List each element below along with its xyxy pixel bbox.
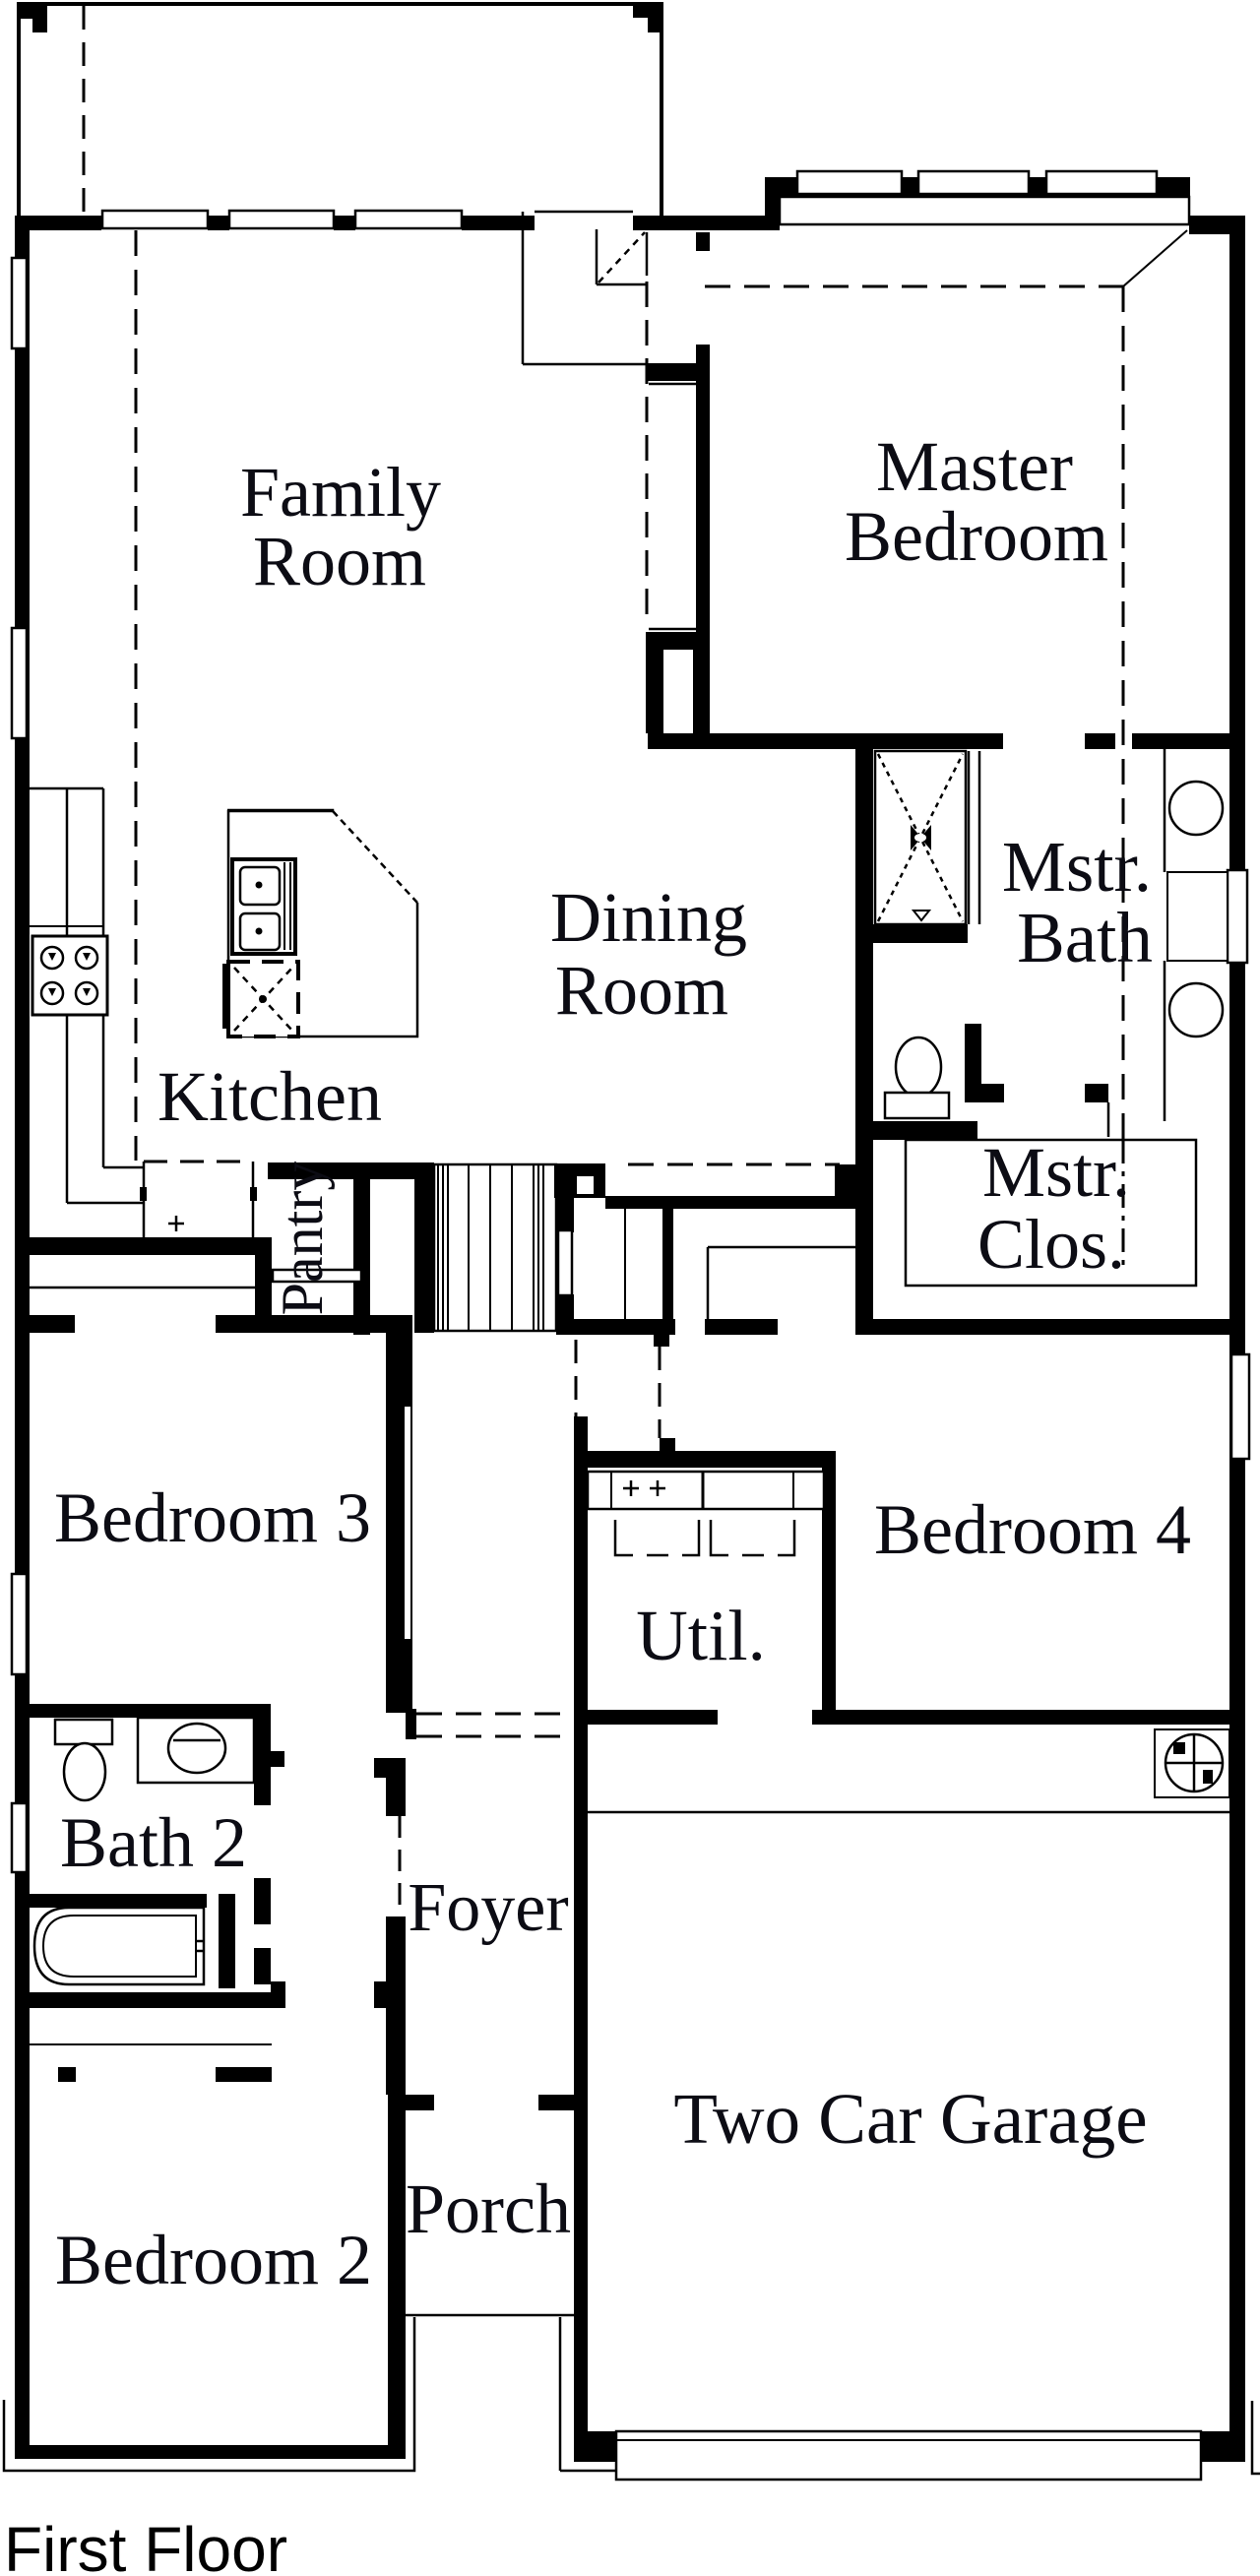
svg-text:Room: Room	[253, 522, 426, 600]
svg-text:Pantry: Pantry	[270, 1162, 335, 1316]
svg-text:Dining: Dining	[550, 878, 747, 957]
svg-text:Porch: Porch	[406, 2169, 571, 2248]
svg-text:Bath 2: Bath 2	[60, 1803, 247, 1882]
svg-text:Clos.: Clos.	[977, 1205, 1125, 1284]
svg-text:Bedroom 3: Bedroom 3	[54, 1478, 371, 1557]
svg-text:Bedroom 2: Bedroom 2	[55, 2221, 372, 2299]
svg-text:Bedroom: Bedroom	[845, 497, 1108, 576]
svg-text:Family: Family	[240, 453, 441, 532]
svg-text:First Floor: First Floor	[4, 2514, 287, 2576]
svg-text:Bath: Bath	[1017, 898, 1153, 977]
svg-text:Util.: Util.	[636, 1596, 766, 1675]
svg-text:Mstr.: Mstr.	[982, 1133, 1130, 1212]
svg-text:Mstr.: Mstr.	[1002, 827, 1152, 907]
svg-text:Foyer: Foyer	[408, 1870, 568, 1946]
svg-text:Two Car Garage: Two Car Garage	[673, 2079, 1147, 2159]
svg-text:Master: Master	[876, 427, 1073, 506]
svg-text:Kitchen: Kitchen	[157, 1057, 382, 1136]
svg-text:Room: Room	[555, 951, 728, 1030]
svg-text:Bedroom 4: Bedroom 4	[874, 1490, 1191, 1569]
